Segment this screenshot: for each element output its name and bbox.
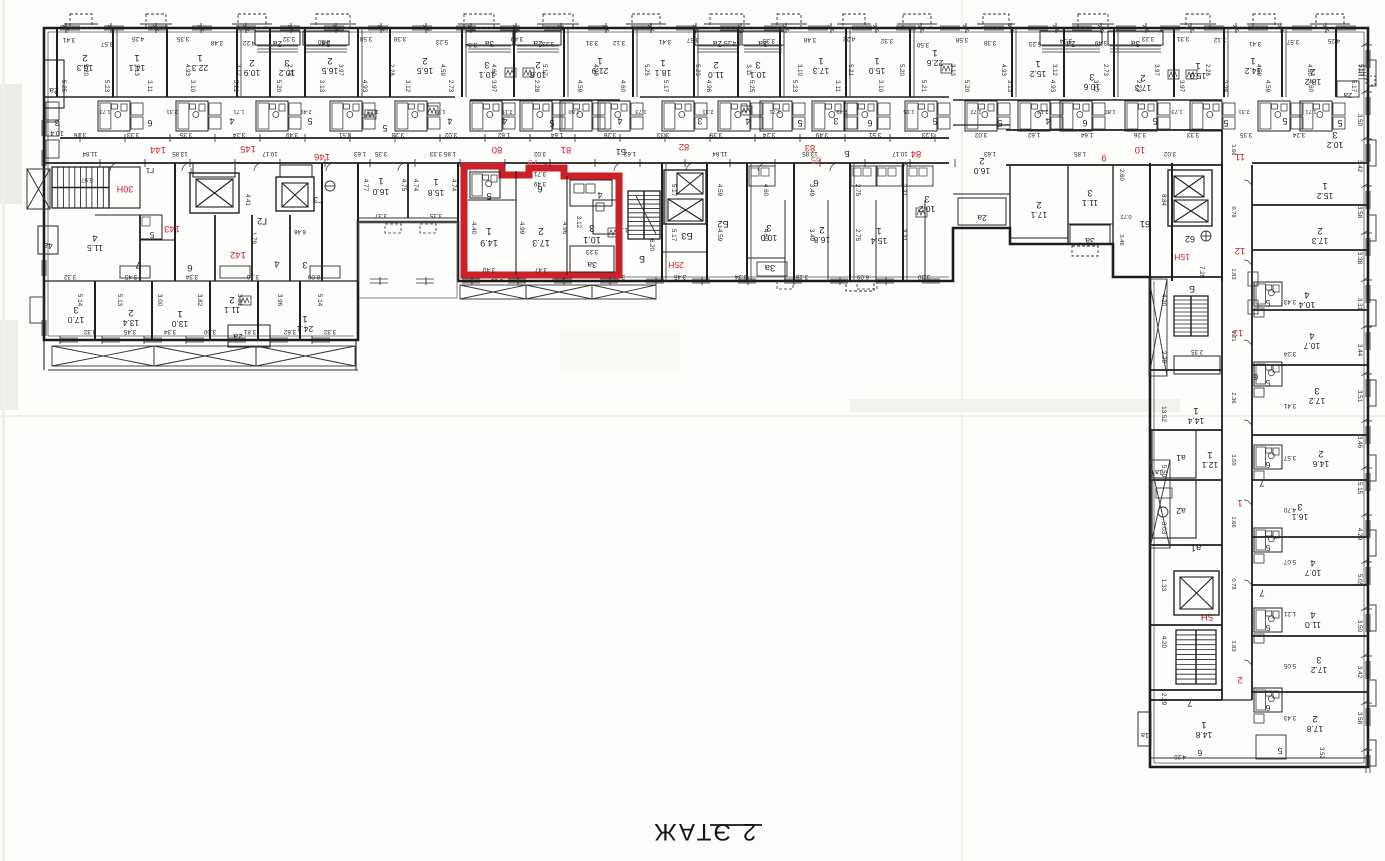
svg-text:3.50: 3.50: [1356, 114, 1363, 127]
svg-text:3.32: 3.32: [880, 37, 893, 44]
svg-text:3.10: 3.10: [189, 80, 196, 93]
svg-text:1: 1: [134, 52, 139, 63]
svg-text:3.32: 3.32: [63, 273, 76, 280]
svg-text:1.50: 1.50: [1230, 454, 1236, 465]
svg-text:3.48: 3.48: [210, 39, 223, 46]
svg-text:5: 5: [932, 116, 937, 126]
svg-text:145: 145: [240, 143, 256, 154]
svg-text:10.2: 10.2: [1326, 140, 1343, 150]
svg-text:2.73: 2.73: [1102, 64, 1108, 76]
svg-text:3.23: 3.23: [391, 131, 404, 138]
svg-text:2a: 2a: [977, 213, 987, 223]
svg-text:3.97: 3.97: [1178, 80, 1185, 93]
svg-text:5: 5: [1282, 116, 1287, 126]
svg-text:10.4: 10.4: [50, 129, 64, 136]
svg-text:13.52: 13.52: [1160, 406, 1167, 422]
svg-text:4.74: 4.74: [412, 179, 419, 192]
svg-text:1.21: 1.21: [1230, 330, 1236, 341]
svg-text:3.13: 3.13: [1006, 80, 1013, 93]
svg-text:1: 1: [1035, 58, 1040, 69]
svg-text:4.22: 4.22: [242, 39, 255, 46]
svg-text:3.96: 3.96: [276, 294, 283, 307]
svg-text:4.60: 4.60: [762, 184, 769, 197]
svg-text:3.35: 3.35: [179, 131, 192, 138]
svg-text:3.49: 3.49: [285, 131, 298, 138]
svg-text:2: 2: [249, 57, 254, 68]
svg-text:3.12: 3.12: [1051, 64, 1057, 76]
svg-text:2: 2: [327, 55, 332, 66]
svg-text:Б: Б: [1189, 284, 1195, 294]
svg-text:3.16: 3.16: [246, 273, 259, 280]
svg-text:4.75: 4.75: [400, 179, 407, 192]
svg-text:3.24: 3.24: [1283, 350, 1296, 357]
svg-text:4.29: 4.29: [1356, 528, 1363, 541]
svg-text:3.81: 3.81: [243, 328, 256, 335]
svg-text:7: 7: [1187, 697, 1192, 708]
svg-text:4: 4: [447, 116, 452, 126]
svg-text:4: 4: [1310, 609, 1315, 620]
svg-text:10: 10: [1135, 144, 1146, 155]
svg-text:5: 5: [1265, 623, 1270, 633]
svg-text:4.60: 4.60: [490, 64, 496, 76]
svg-text:3.58: 3.58: [1356, 712, 1363, 725]
svg-text:1: 1: [932, 47, 937, 58]
svg-text:3.31: 3.31: [900, 229, 907, 242]
svg-text:3.26: 3.26: [1133, 131, 1146, 138]
svg-text:5: 5: [1337, 118, 1342, 128]
svg-text:3.34: 3.34: [163, 328, 176, 335]
svg-text:14.8: 14.8: [1195, 730, 1212, 740]
svg-text:8.84: 8.84: [1160, 194, 1166, 206]
svg-text:3.50: 3.50: [1356, 620, 1363, 633]
svg-text:3.31: 3.31: [1176, 35, 1189, 42]
svg-text:12.1: 12.1: [1201, 460, 1218, 470]
svg-text:13.0: 13.0: [171, 319, 188, 329]
svg-text:61: 61: [1140, 218, 1151, 229]
svg-text:3.49: 3.49: [533, 180, 546, 187]
svg-text:3.33: 3.33: [656, 131, 669, 138]
svg-text:11.1: 11.1: [1082, 198, 1098, 208]
svg-text:5.15: 5.15: [1356, 482, 1363, 495]
svg-text:3.31: 3.31: [1356, 298, 1363, 311]
svg-text:4.20: 4.20: [1174, 753, 1186, 759]
svg-text:5.17: 5.17: [1350, 80, 1357, 93]
svg-text:2.19: 2.19: [1037, 108, 1048, 114]
svg-text:Г3: Г3: [313, 195, 322, 204]
svg-text:3: 3: [302, 259, 307, 270]
svg-text:2.31: 2.31: [702, 108, 713, 114]
svg-text:15.4: 15.4: [870, 236, 887, 246]
svg-text:4.59: 4.59: [439, 64, 445, 76]
svg-text:1.15: 1.15: [903, 108, 914, 114]
svg-text:4.25: 4.25: [1327, 37, 1340, 44]
svg-text:3.50: 3.50: [916, 41, 929, 48]
svg-text:9: 9: [1101, 152, 1106, 163]
svg-text:5.23: 5.23: [791, 80, 798, 93]
svg-text:1.62: 1.62: [1027, 131, 1040, 138]
svg-text:3.33: 3.33: [429, 150, 442, 157]
svg-text:3.12: 3.12: [575, 216, 582, 229]
svg-text:5: 5: [1265, 298, 1270, 308]
svg-text:6.20: 6.20: [648, 239, 654, 251]
svg-text:5: 5: [1265, 378, 1270, 388]
svg-text:3.10: 3.10: [796, 64, 802, 76]
svg-text:4.98: 4.98: [705, 80, 712, 93]
svg-text:3.02: 3.02: [1163, 150, 1176, 157]
svg-text:3: 3: [484, 59, 489, 70]
svg-text:13.85: 13.85: [172, 150, 188, 157]
svg-text:1.15: 1.15: [367, 108, 378, 114]
svg-text:2: 2: [819, 224, 824, 235]
svg-text:1: 1: [433, 176, 438, 187]
svg-text:14.6: 14.6: [1312, 459, 1329, 469]
svg-text:Г1: Г1: [146, 166, 154, 175]
svg-text:2.75: 2.75: [854, 229, 861, 242]
svg-text:3.23: 3.23: [1141, 35, 1154, 42]
svg-text:4.60: 4.60: [762, 229, 769, 242]
svg-text:2: 2: [1317, 225, 1322, 236]
svg-text:3.02: 3.02: [533, 150, 546, 157]
svg-text:1: 1: [1322, 180, 1327, 191]
svg-text:3.41: 3.41: [1283, 402, 1296, 409]
svg-text:3.23: 3.23: [541, 40, 554, 47]
svg-text:4.93: 4.93: [1000, 64, 1006, 76]
svg-text:3.11: 3.11: [834, 80, 841, 92]
svg-text:3.49: 3.49: [510, 35, 523, 42]
svg-text:4.99: 4.99: [518, 222, 525, 235]
svg-text:3.45: 3.45: [673, 273, 686, 280]
svg-text:4: 4: [1304, 289, 1309, 300]
svg-text:1a: 1a: [1141, 731, 1149, 738]
svg-text:5.21: 5.21: [920, 80, 927, 93]
svg-text:3.32: 3.32: [282, 35, 295, 42]
svg-text:5.25: 5.25: [643, 64, 649, 76]
svg-text:3.81: 3.81: [236, 294, 243, 307]
svg-text:2a: 2a: [1343, 91, 1352, 100]
svg-text:3.24: 3.24: [762, 131, 775, 138]
svg-text:2: 2: [1036, 199, 1041, 210]
svg-text:2.73: 2.73: [447, 80, 454, 93]
svg-text:84: 84: [911, 148, 922, 159]
svg-text:3.46: 3.46: [1356, 436, 1363, 449]
svg-text:6: 6: [187, 262, 192, 273]
svg-text:1: 1: [818, 55, 823, 66]
svg-text:1.79: 1.79: [250, 232, 256, 244]
svg-text:5: 5: [307, 116, 312, 126]
svg-text:3.58: 3.58: [1356, 206, 1363, 219]
svg-text:4: 4: [617, 116, 622, 126]
svg-text:1.73: 1.73: [1171, 108, 1182, 114]
svg-text:3.11: 3.11: [745, 64, 751, 76]
svg-text:1: 1: [1193, 405, 1198, 416]
svg-text:5: 5: [486, 191, 491, 201]
svg-text:3.35: 3.35: [1239, 131, 1252, 138]
svg-text:2.49: 2.49: [836, 108, 847, 114]
svg-text:3.45: 3.45: [124, 273, 137, 280]
svg-text:16.5: 16.5: [321, 66, 338, 76]
svg-text:3.58: 3.58: [359, 35, 372, 42]
svg-text:22.3: 22.3: [191, 63, 208, 73]
svg-text:2.49: 2.49: [300, 108, 311, 114]
svg-text:3.46: 3.46: [1118, 234, 1124, 245]
svg-text:3.35: 3.35: [762, 37, 775, 44]
svg-text:3.82: 3.82: [196, 294, 203, 307]
svg-text:18.1: 18.1: [654, 68, 671, 78]
svg-text:11.5: 11.5: [87, 243, 103, 253]
svg-text:3.02: 3.02: [444, 131, 457, 138]
svg-text:5.21: 5.21: [232, 80, 239, 93]
svg-text:4a: 4a: [43, 241, 53, 251]
svg-text:6.46: 6.46: [294, 228, 306, 234]
svg-text:a1: a1: [1191, 542, 1202, 553]
svg-text:5.23: 5.23: [694, 64, 700, 76]
svg-text:1.73: 1.73: [635, 108, 646, 114]
svg-text:16.0: 16.0: [372, 187, 389, 197]
svg-text:4.59: 4.59: [716, 229, 723, 242]
svg-text:4.59: 4.59: [1264, 80, 1271, 93]
svg-text:3.41: 3.41: [658, 38, 671, 45]
svg-text:5.20: 5.20: [898, 64, 904, 76]
svg-text:6: 6: [867, 118, 872, 128]
svg-text:3.34: 3.34: [1059, 37, 1072, 44]
svg-text:Г: Г: [188, 166, 192, 175]
svg-text:1.71: 1.71: [1305, 108, 1316, 114]
svg-text:5.05: 5.05: [1356, 574, 1363, 587]
svg-text:2: 2: [128, 307, 133, 318]
svg-text:6.09: 6.09: [307, 273, 320, 280]
svg-text:3.32: 3.32: [323, 328, 336, 335]
svg-text:2: 2: [979, 155, 984, 166]
svg-text:2.73: 2.73: [1135, 80, 1142, 93]
svg-text:4.41: 4.41: [244, 194, 250, 206]
svg-text:3.57: 3.57: [686, 36, 699, 43]
svg-text:17.3: 17.3: [1311, 236, 1328, 246]
svg-text:3.26: 3.26: [603, 131, 616, 138]
svg-text:Г2: Г2: [257, 216, 267, 226]
svg-text:1: 1: [1250, 55, 1255, 66]
svg-text:3.00: 3.00: [203, 328, 216, 335]
svg-text:5.14: 5.14: [316, 294, 323, 307]
svg-text:13.85: 13.85: [802, 150, 818, 157]
svg-text:16.5: 16.5: [416, 66, 433, 76]
svg-text:5.13: 5.13: [116, 294, 123, 307]
svg-text:3.51: 3.51: [1356, 390, 1363, 403]
svg-text:3: 3: [1316, 654, 1321, 665]
svg-text:3.49: 3.49: [808, 184, 815, 197]
svg-text:3.48: 3.48: [803, 36, 816, 43]
svg-text:15.0: 15.0: [1189, 71, 1206, 81]
svg-text:2.28: 2.28: [1221, 80, 1228, 93]
svg-text:4.98: 4.98: [592, 64, 598, 76]
svg-text:3.41: 3.41: [62, 36, 75, 43]
svg-text:4.60: 4.60: [619, 80, 626, 93]
svg-text:142: 142: [230, 249, 246, 260]
svg-text:4: 4: [502, 116, 507, 126]
svg-text:3.11: 3.11: [146, 80, 153, 92]
svg-text:5.07: 5.07: [1283, 558, 1296, 565]
svg-text:3a: 3a: [485, 39, 494, 48]
svg-text:30H: 30H: [117, 184, 134, 194]
svg-text:5.23: 5.23: [103, 80, 110, 93]
svg-text:3.38: 3.38: [393, 35, 406, 42]
svg-text:25H: 25H: [668, 260, 684, 270]
svg-text:3.58: 3.58: [955, 36, 968, 43]
svg-text:1.63: 1.63: [353, 150, 366, 157]
svg-text:1: 1: [177, 308, 182, 319]
svg-text:3.71: 3.71: [533, 170, 546, 177]
svg-text:1.73: 1.73: [99, 108, 110, 114]
svg-text:1.66: 1.66: [1230, 144, 1236, 155]
svg-text:17.8: 17.8: [1306, 724, 1323, 734]
svg-text:14.9: 14.9: [480, 238, 498, 248]
svg-text:2: 2: [229, 294, 234, 305]
svg-text:13.4: 13.4: [122, 318, 139, 328]
svg-text:3.62: 3.62: [283, 328, 296, 335]
svg-text:2.36: 2.36: [1230, 392, 1236, 403]
svg-text:2: 2: [1318, 448, 1323, 459]
svg-text:2.31: 2.31: [1238, 108, 1249, 114]
svg-text:1.85: 1.85: [1073, 150, 1086, 157]
svg-text:2: 2: [538, 225, 544, 236]
svg-text:2: 2: [535, 59, 540, 70]
svg-text:5.23: 5.23: [1028, 40, 1041, 47]
svg-text:4.25: 4.25: [723, 39, 736, 46]
svg-text:5: 5: [382, 123, 387, 133]
svg-text:6: 6: [1265, 703, 1270, 713]
svg-text:6.09: 6.09: [856, 273, 869, 280]
svg-text:5.05: 5.05: [1283, 662, 1296, 669]
svg-text:15.2: 15.2: [1029, 69, 1046, 79]
svg-text:3.57: 3.57: [100, 40, 113, 47]
svg-text:4.59: 4.59: [716, 184, 723, 197]
svg-text:5: 5: [797, 118, 802, 128]
svg-text:1: 1: [876, 225, 881, 236]
svg-text:5: 5: [549, 118, 554, 128]
svg-text:11.84: 11.84: [82, 150, 98, 157]
svg-text:1: 1: [1201, 719, 1206, 730]
svg-text:3: 3: [755, 59, 760, 70]
svg-text:5.14: 5.14: [76, 294, 83, 307]
svg-text:3.38: 3.38: [1356, 252, 1363, 265]
svg-text:2.60: 2.60: [1118, 169, 1124, 181]
svg-text:1.80: 1.80: [568, 108, 579, 114]
svg-text:3.12: 3.12: [1213, 36, 1226, 43]
svg-text:5.97: 5.97: [81, 176, 93, 182]
svg-text:1: 1: [197, 52, 202, 63]
svg-text:2: 2: [422, 55, 427, 66]
svg-text:3a: 3a: [764, 262, 775, 273]
svg-text:Б: Б: [639, 254, 645, 264]
svg-text:5.17: 5.17: [670, 184, 677, 197]
svg-text:4.93: 4.93: [1049, 80, 1056, 93]
svg-text:11.1: 11.1: [224, 305, 240, 315]
svg-text:0.72: 0.72: [1120, 213, 1131, 219]
svg-text:15.2: 15.2: [1316, 191, 1333, 201]
svg-text:1.62: 1.62: [497, 131, 510, 138]
svg-text:4: 4: [1045, 116, 1050, 126]
svg-text:2.28: 2.28: [388, 64, 394, 76]
svg-text:4.59: 4.59: [576, 80, 583, 93]
svg-text:2.35: 2.35: [1191, 348, 1203, 354]
svg-text:3: 3: [1314, 385, 1319, 396]
svg-text:2.31: 2.31: [166, 108, 177, 114]
svg-text:3: 3: [924, 193, 929, 204]
svg-text:2.28: 2.28: [533, 80, 540, 93]
svg-text:4.74: 4.74: [450, 179, 457, 192]
svg-text:4.93: 4.93: [361, 80, 368, 93]
svg-text:3.35: 3.35: [709, 131, 722, 138]
svg-text:4: 4: [274, 258, 279, 269]
svg-text:4: 4: [1310, 557, 1315, 568]
svg-text:3.24: 3.24: [232, 131, 245, 138]
svg-text:1: 1: [1195, 60, 1200, 71]
svg-text:3.42: 3.42: [1356, 160, 1363, 173]
svg-text:3.00: 3.00: [156, 294, 163, 307]
svg-text:1.66: 1.66: [1230, 516, 1236, 527]
svg-text:4: 4: [1309, 330, 1314, 341]
svg-text:2.29: 2.29: [1160, 693, 1167, 706]
svg-text:3.41: 3.41: [1248, 40, 1261, 47]
svg-text:4.20: 4.20: [1160, 636, 1167, 649]
svg-text:80: 80: [492, 144, 503, 155]
svg-text:1.85: 1.85: [443, 150, 456, 157]
svg-text:17.1: 17.1: [1030, 210, 1047, 220]
svg-text:1.83: 1.83: [1230, 268, 1236, 279]
svg-text:3.57: 3.57: [1283, 454, 1296, 461]
svg-text:5.20: 5.20: [82, 64, 88, 76]
svg-text:17.2: 17.2: [1310, 665, 1327, 675]
svg-text:3.31: 3.31: [585, 39, 598, 46]
svg-text:81: 81: [561, 144, 572, 155]
svg-text:2: 2: [1237, 674, 1242, 685]
svg-text:5.17: 5.17: [670, 229, 677, 242]
svg-text:4.22: 4.22: [842, 35, 855, 42]
svg-text:5: 5: [1223, 118, 1228, 128]
svg-text:0.78: 0.78: [1230, 578, 1236, 589]
svg-text:2: 2: [713, 59, 718, 70]
svg-text:1.72: 1.72: [434, 108, 445, 114]
svg-text:3.52: 3.52: [1318, 747, 1324, 759]
svg-text:6: 6: [1197, 748, 1202, 758]
svg-text:10.7: 10.7: [1304, 568, 1321, 578]
svg-text:5: 5: [1277, 746, 1282, 756]
svg-text:3.12: 3.12: [612, 39, 625, 46]
svg-text:2.28: 2.28: [1204, 64, 1210, 76]
svg-text:4.60: 4.60: [1306, 64, 1312, 76]
svg-text:24.1: 24.1: [296, 324, 313, 334]
svg-text:11.0: 11.0: [1305, 620, 1321, 630]
svg-text:1.62: 1.62: [623, 150, 636, 157]
svg-text:4: 4: [92, 232, 97, 243]
svg-text:1: 1: [874, 55, 879, 66]
svg-text:3.43: 3.43: [1283, 714, 1296, 721]
svg-text:1: 1: [378, 175, 383, 186]
svg-text:4: 4: [745, 116, 750, 126]
svg-text:3.49: 3.49: [1094, 39, 1107, 46]
svg-text:a2: a2: [1176, 506, 1186, 516]
svg-text:3.33: 3.33: [1186, 131, 1199, 138]
svg-text:3.45: 3.45: [123, 328, 136, 335]
svg-text:3.31: 3.31: [900, 184, 907, 197]
svg-text:5.20: 5.20: [963, 80, 970, 93]
svg-text:3.44: 3.44: [1356, 344, 1363, 357]
svg-text:3.51: 3.51: [338, 131, 351, 138]
svg-text:17.0: 17.0: [67, 315, 84, 325]
svg-text:6: 6: [1265, 460, 1270, 470]
svg-text:2a: 2a: [273, 39, 282, 48]
svg-text:3.12: 3.12: [235, 64, 241, 76]
svg-text:3.34: 3.34: [464, 41, 477, 48]
